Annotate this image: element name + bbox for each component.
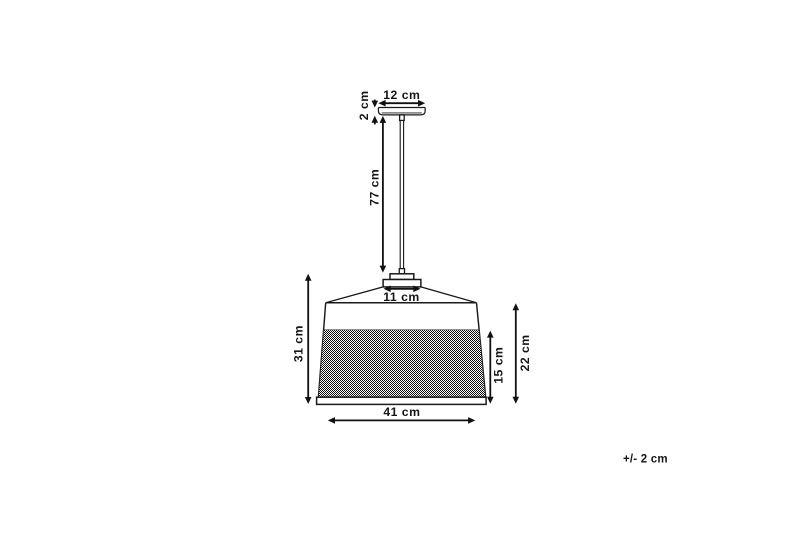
svg-text:77 cm: 77 cm <box>367 169 381 206</box>
svg-text:12 cm: 12 cm <box>383 88 420 102</box>
svg-text:41 cm: 41 cm <box>383 405 420 419</box>
svg-text:15 cm: 15 cm <box>491 347 505 384</box>
svg-text:2 cm: 2 cm <box>357 90 371 120</box>
svg-text:22 cm: 22 cm <box>518 334 532 371</box>
svg-text:+/- 2 cm: +/- 2 cm <box>623 454 668 466</box>
svg-text:11 cm: 11 cm <box>383 290 419 304</box>
svg-text:31 cm: 31 cm <box>292 325 306 362</box>
